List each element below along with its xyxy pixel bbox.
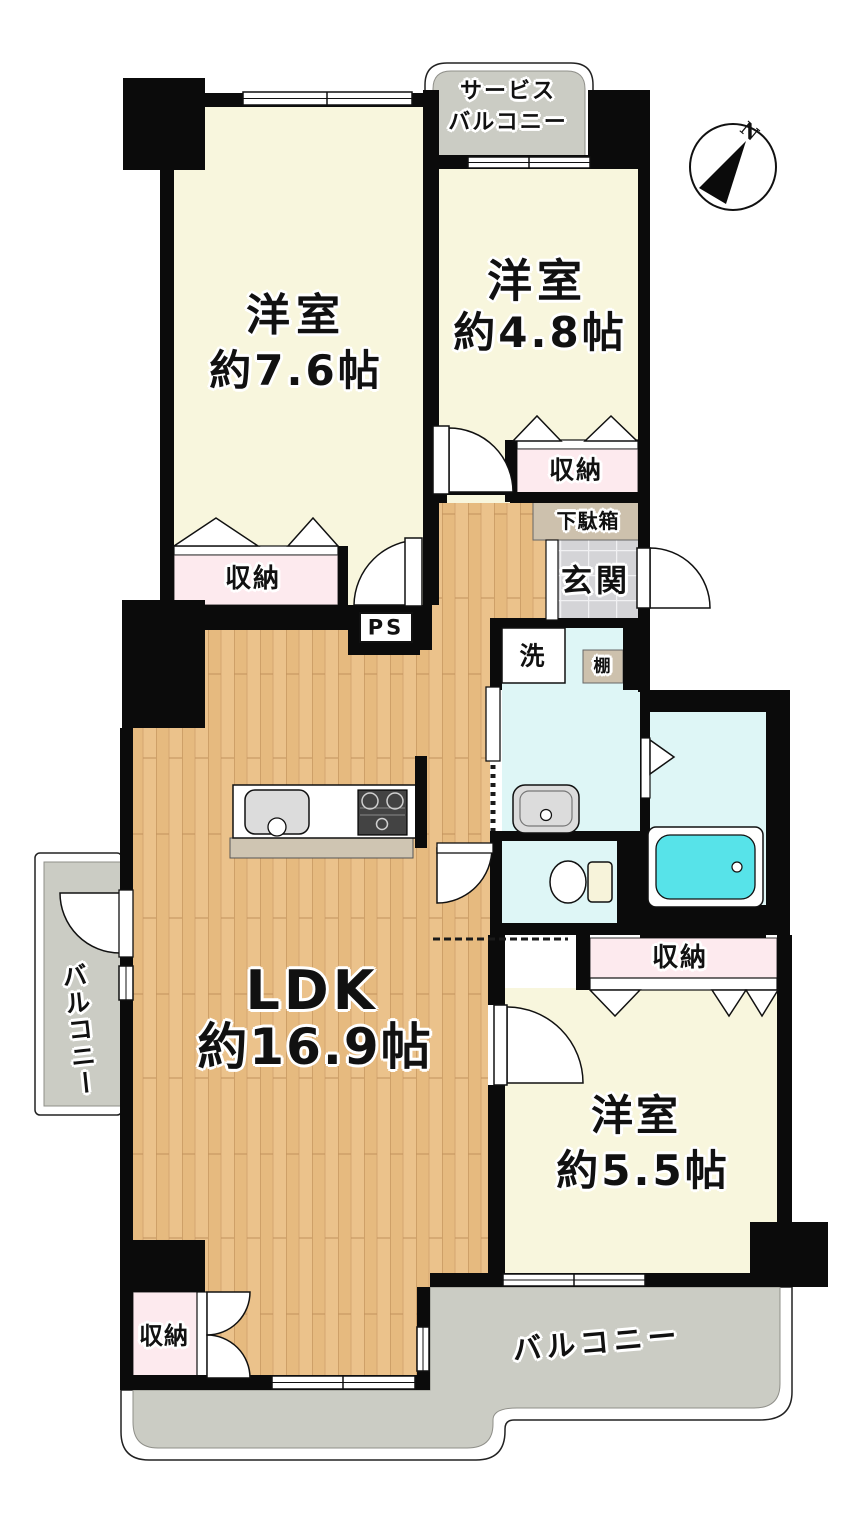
service-balcony-label-1: サービス bbox=[460, 81, 556, 103]
room-55-label: 洋室 bbox=[591, 1095, 681, 1137]
window bbox=[243, 92, 412, 105]
service-balcony-label-2: バルコニー bbox=[448, 112, 568, 134]
kitchen-counter-edge bbox=[230, 838, 413, 858]
bath-door-leaf bbox=[641, 738, 650, 798]
room-76-area: 約7.6帖 bbox=[209, 350, 382, 392]
bathtub-drain bbox=[732, 862, 742, 872]
shelf-label: 棚 bbox=[594, 659, 611, 676]
window bbox=[503, 1274, 645, 1286]
sink-faucet bbox=[268, 818, 286, 836]
balcony-door-leaf bbox=[119, 890, 133, 957]
storage-55-label: 収納 bbox=[652, 945, 708, 971]
stove bbox=[358, 790, 407, 835]
room-76-label: 洋室 bbox=[246, 294, 346, 338]
window bbox=[417, 1327, 429, 1371]
entrance-step bbox=[546, 540, 558, 620]
ldk-area: 約16.9帖 bbox=[197, 1022, 432, 1072]
door-leaf bbox=[437, 843, 493, 853]
washer-label: 洗 bbox=[519, 644, 546, 669]
window bbox=[468, 157, 590, 168]
storage-48-label: 収納 bbox=[549, 458, 603, 483]
sliding-door-leaf bbox=[486, 687, 500, 761]
compass bbox=[690, 124, 776, 210]
window bbox=[119, 966, 133, 1000]
floor-plan: 洋室 約7.6帖 洋室 約4.8帖 LDK 約16.9帖 洋室 約5.5帖 サー… bbox=[0, 0, 860, 1526]
room-48-label: 洋室 bbox=[487, 259, 587, 304]
entrance-door-arc bbox=[650, 548, 710, 608]
storage-76-label: 収納 bbox=[225, 566, 281, 592]
entrance-door-leaf bbox=[637, 548, 650, 608]
floor-plan-graphics bbox=[0, 0, 860, 1526]
storage-ldk-label: 収納 bbox=[139, 1324, 189, 1348]
door-leaf bbox=[433, 426, 449, 494]
door-leaf bbox=[405, 538, 422, 606]
ldk-label: LDK bbox=[245, 964, 378, 1018]
toilet-bowl bbox=[550, 861, 586, 903]
pipe-space-label: PS bbox=[368, 618, 405, 639]
room-55-area: 約5.5帖 bbox=[556, 1150, 729, 1192]
kitchen bbox=[230, 785, 420, 858]
door-leaf bbox=[494, 1005, 507, 1085]
window bbox=[272, 1376, 415, 1389]
shoe-cabinet-label: 下駄箱 bbox=[557, 511, 620, 531]
toilet-tank bbox=[588, 862, 612, 902]
entrance-label: 玄関 bbox=[561, 567, 631, 598]
room-48-area: 約4.8帖 bbox=[453, 312, 626, 354]
